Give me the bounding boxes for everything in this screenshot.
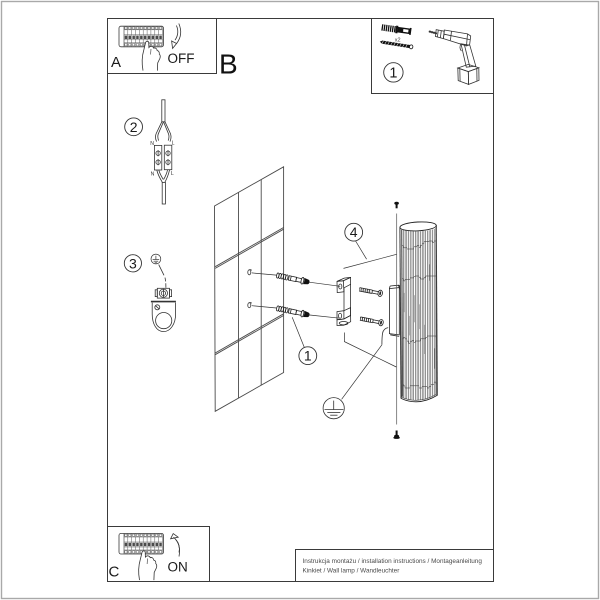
svg-text:A: A	[111, 54, 121, 71]
svg-text:Instrukcja montażu / installat: Instrukcja montażu / installation instru…	[303, 558, 483, 565]
svg-text:N: N	[151, 171, 155, 177]
svg-text:OFF: OFF	[168, 51, 195, 66]
svg-text:L: L	[172, 141, 175, 147]
svg-text:2: 2	[130, 119, 138, 135]
svg-text:4: 4	[350, 224, 358, 240]
svg-text:x2: x2	[395, 38, 401, 44]
svg-text:3: 3	[129, 255, 137, 271]
svg-text:1: 1	[389, 66, 397, 82]
svg-text:L: L	[171, 171, 174, 177]
svg-text:C: C	[109, 564, 120, 581]
svg-text:B: B	[219, 49, 238, 80]
svg-text:Kinkiet / Wall lamp / Wandleuc: Kinkiet / Wall lamp / Wandleuchter	[303, 568, 401, 575]
svg-text:N: N	[150, 141, 154, 147]
svg-text:ON: ON	[168, 560, 188, 575]
svg-text:1: 1	[304, 348, 312, 364]
